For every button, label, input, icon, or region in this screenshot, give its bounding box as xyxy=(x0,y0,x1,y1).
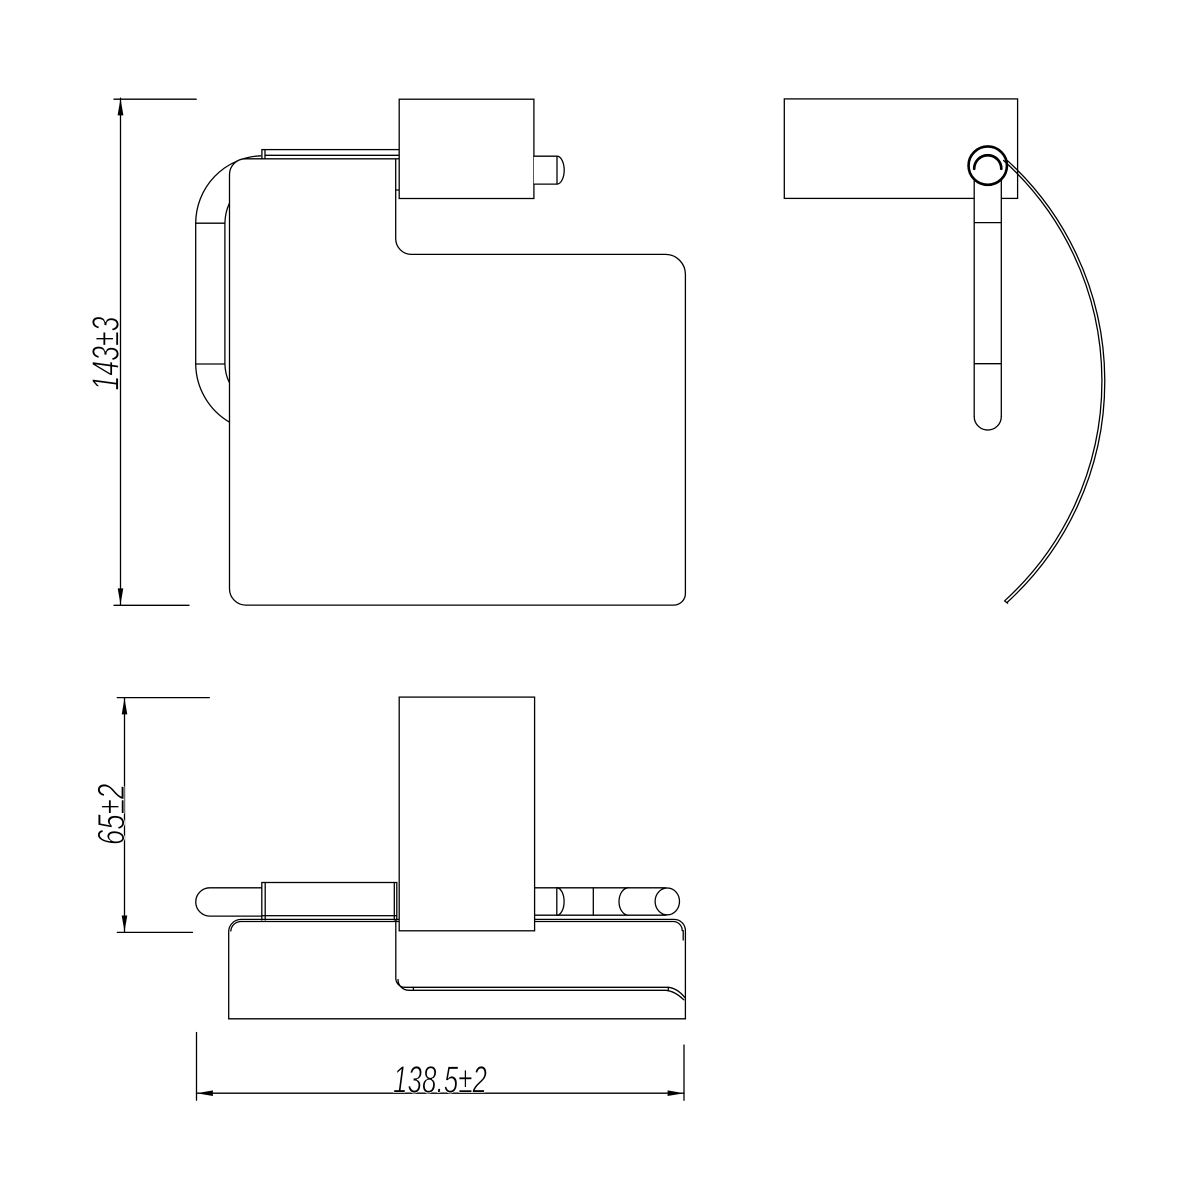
svg-text:65±2: 65±2 xyxy=(91,784,133,846)
svg-text:138.5±2: 138.5±2 xyxy=(393,1060,487,1102)
svg-text:143±3: 143±3 xyxy=(86,317,128,391)
